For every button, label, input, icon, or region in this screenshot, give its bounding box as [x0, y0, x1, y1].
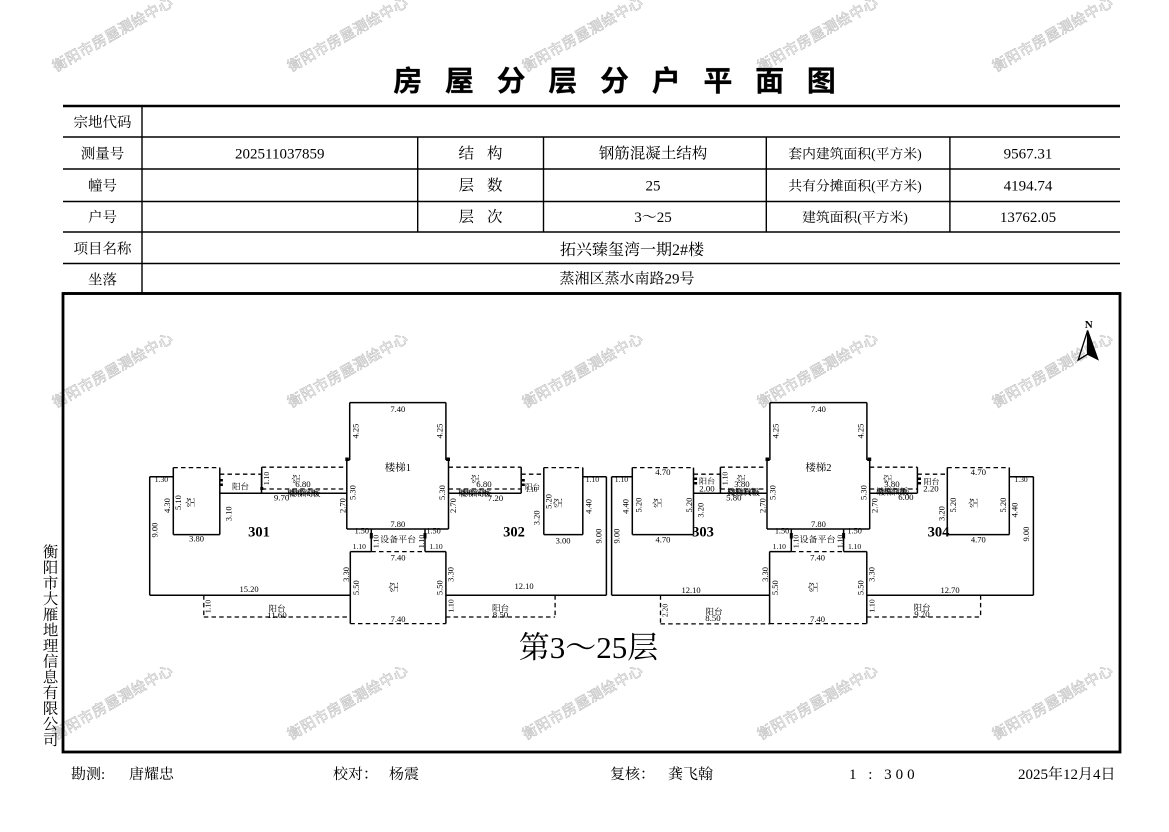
- svg-text:4.40: 4.40: [584, 499, 594, 514]
- svg-text:7.40: 7.40: [391, 614, 406, 624]
- svg-text:1.10: 1.10: [721, 472, 730, 485]
- svg-text:): ): [917, 147, 922, 163]
- svg-text:1.10: 1.10: [791, 535, 800, 548]
- svg-text:3: 3: [634, 210, 642, 226]
- svg-text:2.00: 2.00: [699, 484, 715, 494]
- svg-text:4.40: 4.40: [621, 499, 631, 514]
- svg-text:9567.31: 9567.31: [1004, 147, 1053, 163]
- svg-text:301: 301: [248, 525, 270, 541]
- svg-text:1.30: 1.30: [155, 475, 168, 484]
- svg-text:2.70: 2.70: [758, 498, 768, 513]
- svg-text:25: 25: [657, 210, 672, 226]
- svg-text:4.70: 4.70: [971, 467, 987, 477]
- svg-text:15.20: 15.20: [239, 584, 258, 594]
- svg-text:(: (: [857, 210, 862, 226]
- svg-text:1.50: 1.50: [355, 526, 369, 535]
- svg-text:25: 25: [596, 630, 627, 665]
- svg-text:(: (: [871, 179, 876, 195]
- svg-text::: :: [101, 767, 105, 783]
- svg-text:2.20: 2.20: [661, 604, 670, 617]
- svg-text:1.10: 1.10: [429, 542, 442, 551]
- svg-text:4.70: 4.70: [655, 535, 670, 545]
- svg-text:1.30: 1.30: [1014, 475, 1027, 484]
- svg-text:5.20: 5.20: [634, 498, 644, 513]
- svg-text:3.80: 3.80: [884, 479, 900, 489]
- svg-text:29: 29: [665, 272, 680, 288]
- svg-text:1.50: 1.50: [775, 526, 789, 535]
- svg-text:12.10: 12.10: [681, 585, 700, 595]
- svg-text:4.40: 4.40: [1009, 503, 1019, 518]
- svg-text:1.10: 1.10: [447, 599, 456, 612]
- svg-text:3.20: 3.20: [696, 503, 706, 518]
- svg-text:3.20: 3.20: [937, 506, 947, 521]
- svg-text:7.40: 7.40: [390, 404, 405, 414]
- svg-text:3.30: 3.30: [760, 567, 770, 582]
- svg-text:5.10: 5.10: [173, 495, 183, 510]
- svg-text:1 : 300: 1 : 300: [849, 767, 919, 783]
- svg-text:13762.05: 13762.05: [1000, 210, 1056, 226]
- svg-text:2#: 2#: [672, 242, 688, 259]
- svg-text:6.80: 6.80: [476, 479, 492, 489]
- svg-text:7.40: 7.40: [810, 614, 825, 624]
- svg-text:3.30: 3.30: [341, 567, 351, 582]
- svg-text:5.20: 5.20: [998, 498, 1008, 513]
- svg-text:304: 304: [928, 525, 950, 541]
- svg-text:8.50: 8.50: [705, 613, 721, 623]
- svg-text:6.00: 6.00: [898, 492, 914, 502]
- svg-text:5.50: 5.50: [435, 580, 445, 595]
- svg-text:7.40: 7.40: [810, 553, 825, 563]
- svg-text:9.00: 9.00: [611, 529, 621, 544]
- svg-text:8.50: 8.50: [493, 610, 509, 620]
- svg-text:1.10: 1.10: [773, 542, 786, 551]
- svg-text:12.10: 12.10: [514, 581, 533, 591]
- svg-text:2025: 2025: [1018, 767, 1048, 783]
- svg-text:3.80: 3.80: [734, 479, 750, 489]
- svg-text:25: 25: [646, 179, 661, 195]
- svg-text:1.50: 1.50: [848, 526, 862, 535]
- svg-text:3.80: 3.80: [189, 534, 204, 544]
- svg-text:): ): [917, 179, 922, 195]
- svg-text:6.80: 6.80: [295, 479, 311, 489]
- svg-text:4.70: 4.70: [971, 535, 986, 545]
- svg-text:9.00: 9.00: [593, 529, 603, 544]
- svg-text:2.70: 2.70: [448, 498, 458, 513]
- svg-text:7.40: 7.40: [391, 553, 406, 563]
- svg-text:(: (: [871, 147, 876, 163]
- svg-text:2.70: 2.70: [337, 498, 347, 513]
- svg-text:303: 303: [692, 525, 714, 541]
- svg-text:202511037859: 202511037859: [235, 147, 324, 163]
- svg-text:1.10: 1.10: [353, 542, 366, 551]
- svg-text:5.50: 5.50: [351, 580, 361, 595]
- svg-text:1.10: 1.10: [615, 475, 628, 484]
- svg-text:4.25: 4.25: [856, 424, 866, 439]
- svg-text:N: N: [1085, 319, 1093, 331]
- svg-text:1.50: 1.50: [426, 526, 440, 535]
- svg-text:1.10: 1.10: [836, 535, 845, 548]
- svg-text:2: 2: [826, 463, 831, 474]
- svg-text:2.20: 2.20: [923, 484, 939, 494]
- svg-text:1.10: 1.10: [371, 535, 380, 548]
- svg-text:4: 4: [1093, 767, 1101, 783]
- svg-text:5.80: 5.80: [726, 492, 742, 502]
- svg-text:): ): [903, 210, 908, 226]
- svg-text:5.20: 5.20: [948, 498, 958, 513]
- svg-text:1.10: 1.10: [586, 475, 599, 484]
- svg-text:12: 12: [1063, 767, 1078, 783]
- svg-text:5.30: 5.30: [858, 485, 868, 500]
- svg-text:12.70: 12.70: [940, 585, 959, 595]
- svg-text:302: 302: [503, 525, 525, 541]
- svg-text:4.25: 4.25: [350, 424, 360, 439]
- svg-text:4194.74: 4194.74: [1004, 179, 1053, 195]
- svg-text:7.80: 7.80: [390, 519, 405, 529]
- svg-text:5.30: 5.30: [347, 485, 357, 500]
- svg-text:2.70: 2.70: [869, 498, 879, 513]
- svg-text:5.20: 5.20: [684, 498, 694, 513]
- svg-text:4.25: 4.25: [435, 424, 445, 439]
- svg-text:5.30: 5.30: [437, 485, 447, 500]
- svg-text:3.00: 3.00: [556, 536, 571, 546]
- svg-text:1.10: 1.10: [417, 535, 426, 548]
- svg-text:3.20: 3.20: [532, 510, 542, 525]
- svg-text:5.20: 5.20: [544, 494, 554, 509]
- svg-text:11.60: 11.60: [267, 610, 287, 620]
- svg-text:9.70: 9.70: [274, 493, 290, 503]
- svg-text:9.00: 9.00: [149, 523, 159, 538]
- svg-text:7.20: 7.20: [488, 493, 504, 503]
- svg-text:5.50: 5.50: [770, 580, 780, 595]
- svg-text:1: 1: [406, 463, 411, 474]
- svg-text:5.30: 5.30: [768, 485, 778, 500]
- svg-text:1.10: 1.10: [204, 600, 213, 613]
- svg-text:3.10: 3.10: [224, 506, 234, 521]
- svg-text:4.70: 4.70: [655, 467, 671, 477]
- svg-text:9.70: 9.70: [914, 609, 930, 619]
- svg-text:1.10: 1.10: [867, 599, 876, 612]
- svg-text:9.00: 9.00: [1021, 527, 1031, 542]
- svg-text:3.30: 3.30: [446, 567, 456, 582]
- svg-text:1.10: 1.10: [848, 542, 861, 551]
- svg-text:5.50: 5.50: [855, 580, 865, 595]
- svg-text:3.30: 3.30: [866, 567, 876, 582]
- svg-text:7.80: 7.80: [811, 519, 826, 529]
- svg-text:1.10: 1.10: [526, 487, 538, 494]
- svg-text:7.40: 7.40: [811, 404, 826, 414]
- svg-text:3: 3: [550, 630, 566, 665]
- svg-text:4.25: 4.25: [771, 424, 781, 439]
- svg-text:1.10: 1.10: [262, 472, 271, 485]
- svg-text:4.30: 4.30: [162, 498, 172, 513]
